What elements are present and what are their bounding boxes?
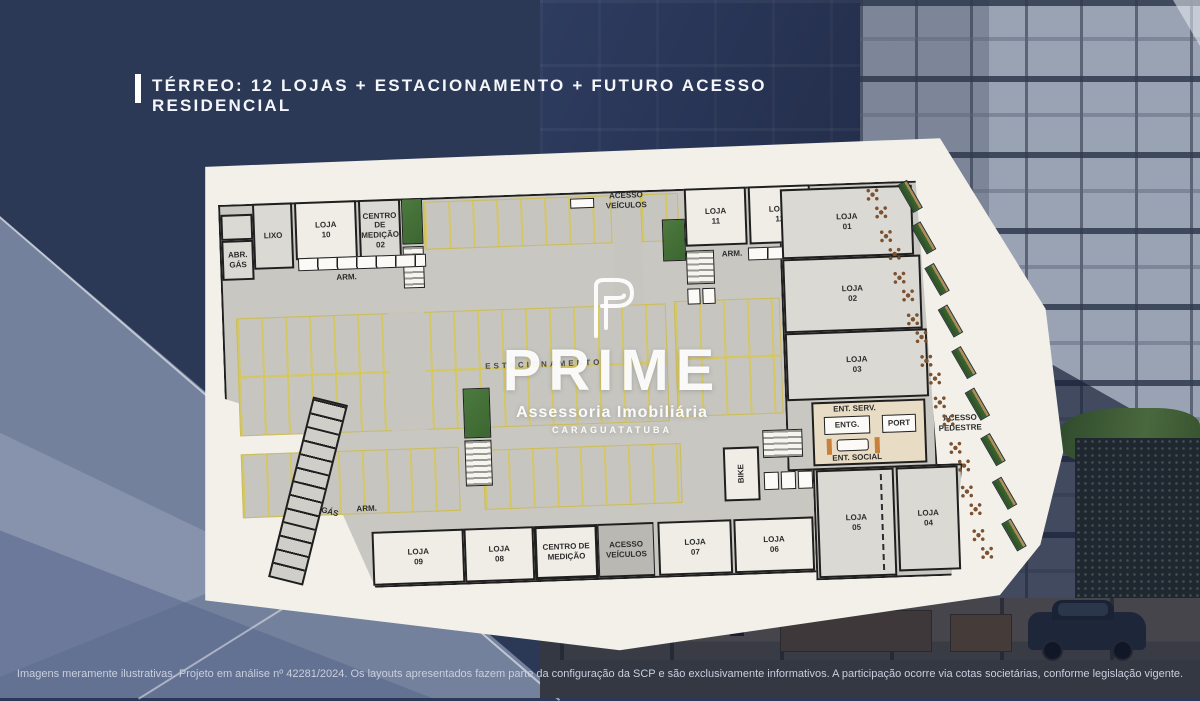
- loja-number: 01: [843, 222, 852, 232]
- room-abrigo-gas: ABR. GÁS: [221, 240, 254, 281]
- stairs: [464, 440, 493, 487]
- room-loja-06: LOJA 06: [733, 516, 815, 573]
- elevator: [764, 472, 780, 491]
- loja-label: LOJA: [763, 534, 785, 545]
- centro-medicao-label: CENTRO DE MEDIÇÃO: [537, 540, 596, 563]
- loja-number: 02: [848, 294, 857, 304]
- entregas-room: ENTG.: [824, 415, 871, 435]
- loja-number: 09: [414, 557, 423, 567]
- terrace-table: [972, 528, 985, 541]
- terrace-table: [920, 354, 933, 367]
- room-loja-09: LOJA 09: [372, 529, 466, 586]
- terrace-table: [879, 229, 892, 242]
- terrace-table: [874, 206, 887, 219]
- title-accent-bar: [135, 74, 141, 103]
- room-utility: [220, 214, 253, 241]
- room-loja-05: LOJA 05: [816, 468, 898, 579]
- stairs: [762, 429, 803, 458]
- background-green-trellis-wall: [1075, 438, 1200, 610]
- lobby-bench: [837, 438, 869, 451]
- door-marker: [827, 439, 833, 455]
- terrace-table: [942, 413, 955, 426]
- loja-number: 11: [711, 216, 720, 226]
- terrace-table: [957, 459, 970, 472]
- terrace-table: [949, 441, 962, 454]
- arm-label: ARM.: [717, 249, 747, 260]
- terrace-table: [980, 546, 993, 559]
- slide-canvas: ESTACIONAMENTO ABR. GÁS LIXO LOJA 10 CEN…: [0, 0, 1200, 698]
- planter-green: [401, 198, 424, 245]
- loja-number: 03: [853, 365, 862, 375]
- port-label: PORT: [888, 418, 911, 428]
- terrace-table: [933, 396, 946, 409]
- loja-label: LOJA: [684, 537, 706, 548]
- door-marker: [875, 437, 881, 453]
- terrace-table: [901, 289, 914, 302]
- elevator: [781, 471, 797, 490]
- loja-number: 06: [770, 545, 779, 555]
- room-loja-07: LOJA 07: [657, 519, 733, 576]
- terrace-hedge: [938, 304, 964, 337]
- legal-disclaimer: Imagens meramente ilustrativas. Projeto …: [0, 668, 1200, 680]
- loja-label: LOJA: [841, 284, 863, 295]
- room-loja-08: LOJA 08: [463, 526, 535, 582]
- loja-number: 05: [852, 523, 861, 533]
- terrace-table: [888, 247, 901, 260]
- speed-bump: [570, 198, 594, 209]
- loja-number: 04: [924, 518, 933, 528]
- lixo-label: LIXO: [264, 231, 283, 241]
- loja-label: LOJA: [488, 544, 510, 555]
- loja-number: 10: [321, 230, 330, 240]
- terrace-hedge: [1001, 518, 1027, 551]
- terrace-table: [928, 372, 941, 385]
- arm-label: ARM.: [347, 503, 387, 514]
- loja-label: LOJA: [407, 547, 429, 558]
- terrace-table: [915, 330, 928, 343]
- abrigo-gas-label: ABR. GÁS: [224, 250, 253, 270]
- terrace-hedge: [980, 433, 1006, 466]
- room-centro-medicao-02: CENTRO DE MEDIÇÃO 02: [358, 199, 402, 262]
- watermark: PRIME Assessoria Imobiliária CARAGUATATU…: [462, 276, 762, 435]
- terrace-table: [866, 188, 879, 201]
- loja-number: 07: [691, 547, 700, 557]
- room-centro-medicao: CENTRO DE MEDIÇÃO: [533, 524, 599, 580]
- planter-green: [662, 219, 686, 262]
- elevator: [798, 470, 814, 489]
- room-loja-03: LOJA 03: [785, 328, 929, 401]
- room-loja-04: LOJA 04: [896, 465, 962, 571]
- acesso-veiculos-bottom-label: ACESSO VEÍCULOS: [599, 539, 654, 560]
- entg-label: ENTG.: [835, 420, 860, 430]
- acesso-veiculos-top-label: ACESSO VEÍCULOS: [594, 190, 659, 211]
- terrace-hedge: [951, 346, 977, 379]
- room-lixo: LIXO: [252, 202, 294, 269]
- room-loja-10: LOJA 10: [294, 200, 358, 260]
- terrace-table: [969, 503, 982, 516]
- loja-label: LOJA: [315, 220, 337, 231]
- watermark-city: CARAGUATATUBA: [552, 425, 672, 435]
- loja-label: LOJA: [705, 206, 727, 217]
- room-bike: BIKE: [723, 446, 761, 501]
- terrace-table: [960, 485, 973, 498]
- terrace-table: [893, 271, 906, 284]
- loja-label: LOJA: [845, 513, 867, 524]
- vehicle-access-drive: ACESSO VEÍCULOS: [597, 522, 655, 578]
- bike-label: BIKE: [737, 464, 747, 483]
- centro-medicao-02-label: CENTRO DE MEDIÇÃO 02: [359, 209, 400, 251]
- parking-stalls: [483, 443, 683, 510]
- room-loja-11: LOJA 11: [684, 187, 748, 247]
- loja-number: 08: [495, 554, 504, 564]
- terrace-table: [906, 313, 919, 326]
- parking-drive-aisle: [388, 312, 428, 431]
- loja-label: LOJA: [846, 354, 868, 365]
- watermark-brand: PRIME: [503, 342, 722, 400]
- page-title: TÉRREO: 12 LOJAS + ESTACIONAMENTO + FUTU…: [152, 76, 912, 116]
- loja-label: LOJA: [836, 212, 858, 223]
- terrace-hedge: [992, 477, 1018, 510]
- terrace-hedge: [924, 263, 950, 296]
- loja-label: LOJA: [917, 508, 939, 519]
- portaria-room: PORT: [882, 414, 917, 433]
- watermark-tagline: Assessoria Imobiliária: [516, 404, 708, 422]
- prime-logo-icon: [586, 276, 638, 340]
